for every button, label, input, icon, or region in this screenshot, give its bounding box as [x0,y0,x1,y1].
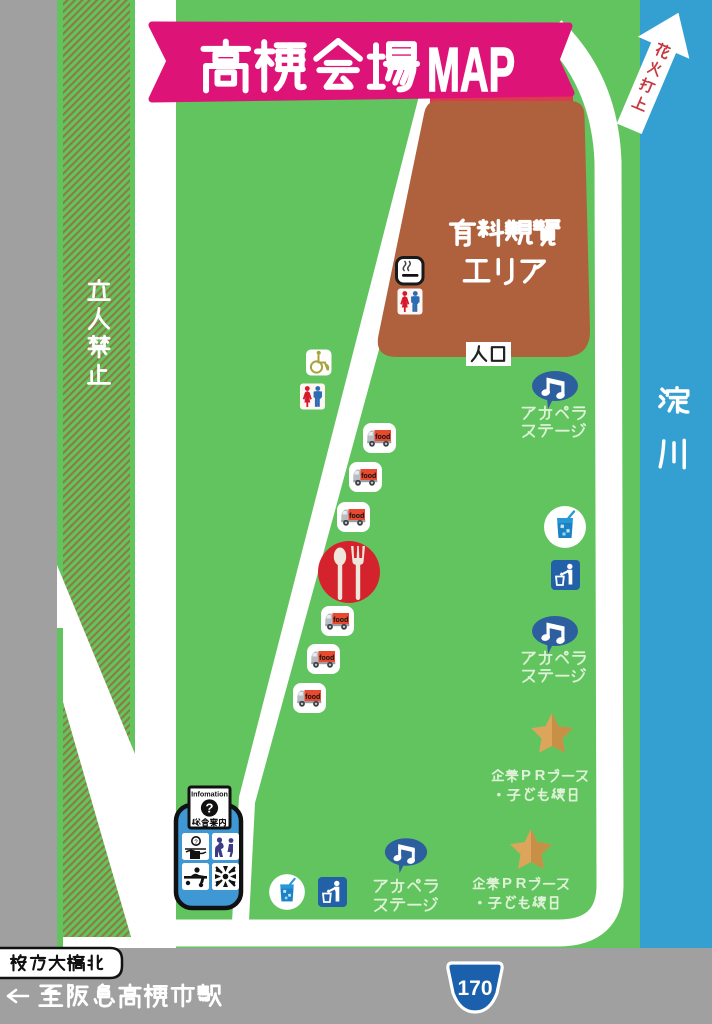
svg-text:P: P [521,768,531,784]
svg-text:Infomation: Infomation [191,790,228,799]
svg-text:MAP: MAP [427,36,515,105]
svg-text:?: ? [206,801,214,816]
svg-text:R: R [516,876,527,892]
svg-text:R: R [535,768,546,784]
svg-text:170: 170 [457,977,492,1000]
svg-text:P: P [502,876,512,892]
